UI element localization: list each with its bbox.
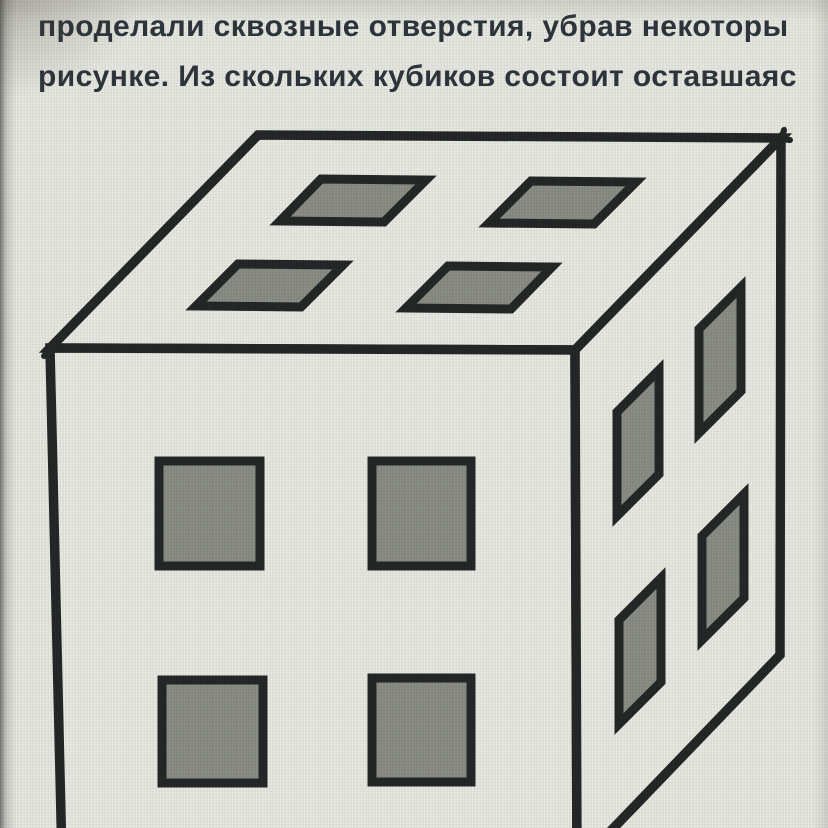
front-face-hole-bottom-left [162, 680, 263, 783]
front-face-hole-top-right [372, 461, 471, 566]
corner-overshoot-top-right-out [781, 139, 790, 140]
front-face-hole-bottom-right [372, 678, 471, 782]
cube-front-face [50, 348, 577, 828]
cube-figure [0, 0, 828, 828]
front-face-hole-top-left [159, 461, 260, 566]
photo-background: проделали сквозные отверстия, убрав неко… [0, 0, 828, 828]
